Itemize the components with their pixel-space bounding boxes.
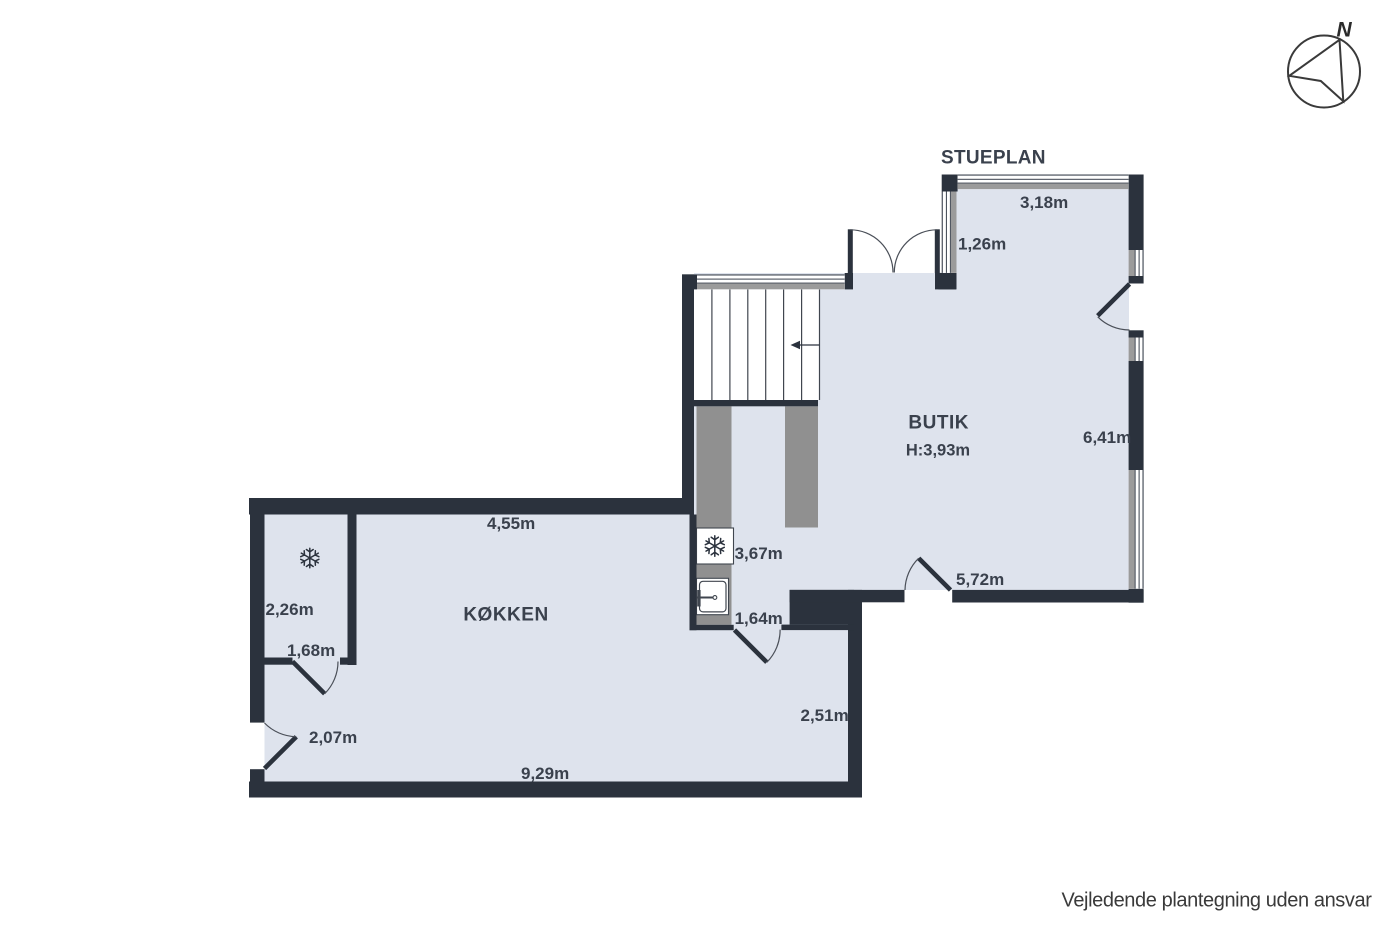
svg-text:STUEPLAN: STUEPLAN [941,148,1046,169]
svg-text:Vejledende plantegning uden an: Vejledende plantegning uden ansvar [1061,890,1372,912]
svg-text:2,26m: 2,26m [266,600,314,619]
svg-text:H:3,93m: H:3,93m [906,442,970,460]
svg-text:6,41m: 6,41m [1083,428,1131,447]
svg-text:1,68m: 1,68m [287,641,335,660]
svg-text:3,67m: 3,67m [735,544,783,563]
svg-text:3,18m: 3,18m [1020,193,1068,212]
svg-text:2,07m: 2,07m [309,728,357,747]
svg-text:4,55m: 4,55m [487,514,535,533]
svg-text:9,29m: 9,29m [521,764,569,783]
svg-text:KØKKEN: KØKKEN [463,605,548,626]
svg-text:2,51m: 2,51m [801,706,849,725]
svg-text:N: N [1337,19,1353,42]
svg-text:1,64m: 1,64m [735,609,783,628]
svg-text:BUTIK: BUTIK [908,413,969,434]
svg-text:1,26m: 1,26m [958,235,1006,254]
svg-text:5,72m: 5,72m [956,570,1004,589]
